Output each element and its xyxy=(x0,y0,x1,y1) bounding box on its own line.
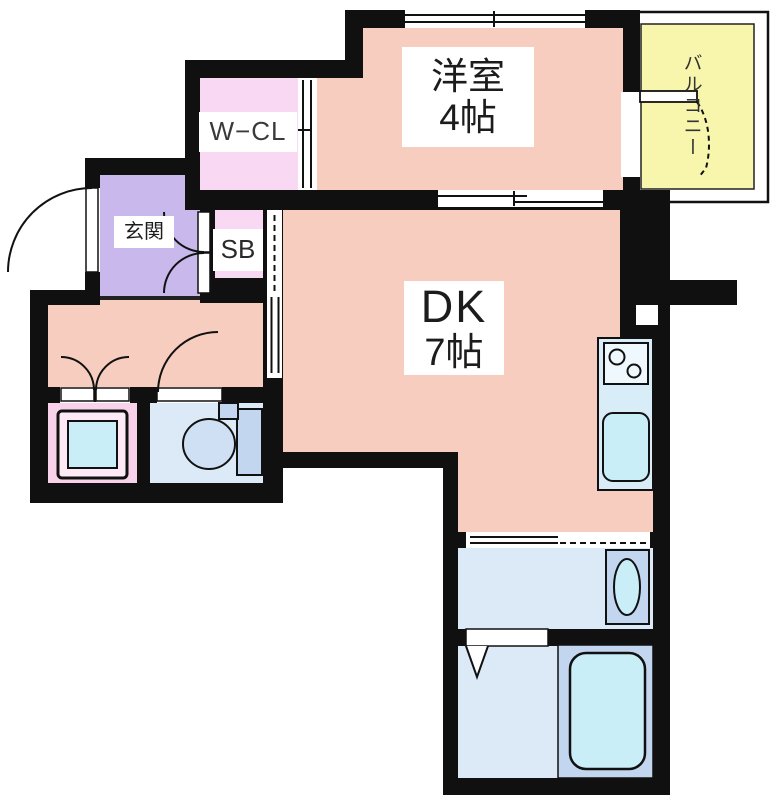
laundry-door-leaf xyxy=(61,388,94,401)
room-dk-slider-opening xyxy=(438,190,603,207)
balcony-label: バルコニー xyxy=(675,30,707,180)
western-room-size: 4帖 xyxy=(439,97,497,138)
wall-segment xyxy=(30,483,283,503)
entrance-name: 玄関 xyxy=(124,221,164,243)
entrance-door-leaf xyxy=(86,188,98,272)
laundry-door-leaf xyxy=(96,388,129,401)
toilet-bowl-icon xyxy=(183,419,235,469)
western-room-name: 洋室 xyxy=(431,56,505,97)
wall-segment xyxy=(670,280,737,305)
toilet-tank-icon xyxy=(237,409,262,475)
shoe-box-name: SB xyxy=(221,235,256,264)
washroom-slider-opening xyxy=(466,532,650,548)
wall-segment xyxy=(30,290,48,503)
bathroom-door-leaf xyxy=(466,629,548,646)
shoe-box-label: SB xyxy=(213,229,263,271)
walk-in-closet-name: W−CL xyxy=(210,117,287,146)
washing-machine-icon xyxy=(68,421,117,468)
entrance-step-line xyxy=(100,296,200,300)
balcony-name: バルコニー xyxy=(680,53,701,158)
dining-kitchen-floor xyxy=(458,490,653,532)
dining-kitchen-size: 7帖 xyxy=(424,332,483,375)
walk-in-closet-label: W−CL xyxy=(199,112,297,152)
kitchen-sink-icon xyxy=(603,413,649,481)
dining-kitchen-label: DK 7帖 xyxy=(404,281,504,375)
dining-kitchen-name: DK xyxy=(421,282,488,332)
closet-door-opening xyxy=(298,78,317,190)
dining-kitchen-floor xyxy=(458,452,598,490)
vanity-basin-icon xyxy=(614,559,640,615)
toilet-flush-icon xyxy=(219,403,238,419)
shoe-box-door-leaf xyxy=(198,212,210,252)
bathtub-icon xyxy=(570,653,645,769)
entrance-door-swing-icon xyxy=(8,188,92,272)
shoe-box-door-leaf xyxy=(198,253,210,293)
wall-segment xyxy=(137,403,150,483)
wall-segment xyxy=(185,60,363,78)
pipe-space-niche xyxy=(636,305,658,325)
stove-icon xyxy=(604,343,648,384)
toilet-door-leaf xyxy=(157,388,222,401)
wall-segment xyxy=(268,452,458,468)
hallway-floor xyxy=(48,296,263,387)
western-room-label: 洋室 4帖 xyxy=(402,47,534,147)
wall-segment xyxy=(85,158,200,175)
wall-segment xyxy=(653,330,670,795)
wall-segment xyxy=(443,452,458,795)
balcony-door-opening xyxy=(621,92,640,177)
wall-segment xyxy=(443,778,670,795)
entrance-label: 玄関 xyxy=(114,216,174,248)
floor-plan: 洋室 4帖 DK 7帖 W−CL 玄関 SB バルコニー xyxy=(0,0,777,800)
floor-plan-drawing xyxy=(0,0,777,800)
